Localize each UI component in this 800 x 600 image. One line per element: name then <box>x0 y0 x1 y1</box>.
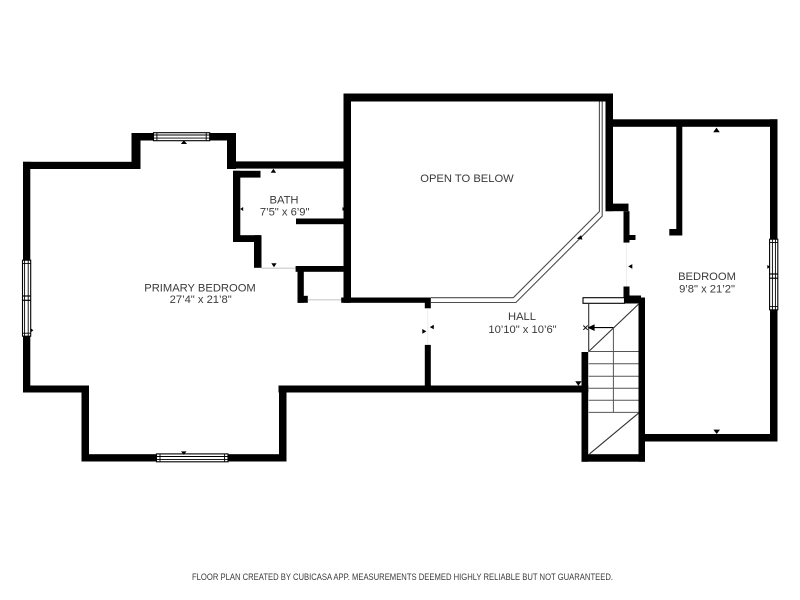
svg-text:9’8" x 21’2": 9’8" x 21’2" <box>679 284 735 296</box>
svg-text:27’4" x 21’8": 27’4" x 21’8" <box>170 294 232 306</box>
svg-text:PRIMARY BEDROOM: PRIMARY BEDROOM <box>144 283 255 295</box>
svg-text:FLOOR PLAN CREATED BY CUBICASA: FLOOR PLAN CREATED BY CUBICASA APP. MEAS… <box>192 572 613 582</box>
svg-text:10’10" x 10’6": 10’10" x 10’6" <box>488 324 556 336</box>
svg-text:BEDROOM: BEDROOM <box>678 271 736 283</box>
svg-text:BATH: BATH <box>269 194 298 206</box>
svg-text:7’5" x 6’9": 7’5" x 6’9" <box>260 206 310 218</box>
svg-text:HALL: HALL <box>508 311 536 323</box>
svg-text:OPEN TO BELOW: OPEN TO BELOW <box>420 173 514 185</box>
